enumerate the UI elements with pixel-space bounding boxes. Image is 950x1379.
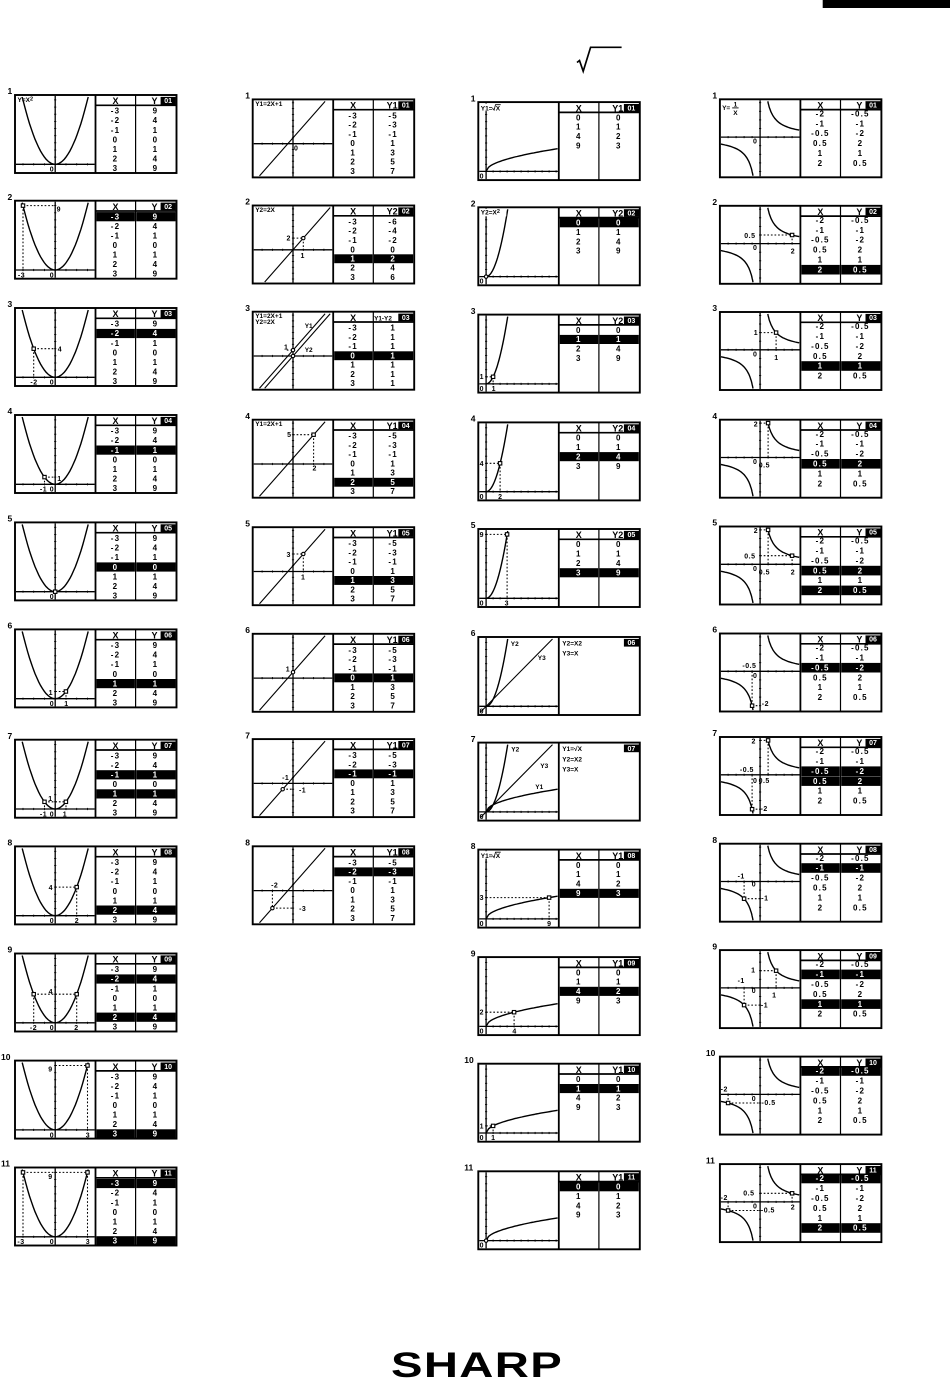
svg-text:3: 3 [113, 809, 119, 818]
svg-text:2: 2 [858, 1096, 864, 1105]
svg-text:1: 1 [63, 811, 67, 818]
svg-text:4: 4 [153, 1120, 159, 1129]
svg-text:04: 04 [628, 426, 636, 433]
svg-text:-3: -3 [388, 760, 398, 769]
svg-text:1: 1 [858, 1000, 864, 1009]
svg-text:0.5: 0.5 [853, 1010, 868, 1019]
svg-text:2: 2 [8, 192, 13, 202]
svg-text:X: X [496, 105, 501, 112]
svg-text:7: 7 [8, 731, 13, 741]
svg-text:Y: Y [151, 1062, 157, 1072]
svg-text:6: 6 [8, 621, 13, 631]
svg-text:0: 0 [753, 245, 757, 252]
svg-text:3: 3 [712, 303, 717, 313]
svg-text:9: 9 [153, 809, 159, 818]
svg-text:-1: -1 [111, 984, 121, 993]
svg-text:5: 5 [390, 585, 396, 594]
svg-text:-1: -1 [388, 450, 398, 459]
svg-text:-0.5: -0.5 [851, 109, 870, 118]
svg-text:0: 0 [480, 1029, 484, 1036]
svg-text:-2: -2 [816, 1174, 826, 1183]
svg-text:9: 9 [576, 997, 582, 1006]
svg-text:3: 3 [113, 1237, 119, 1246]
svg-text:-2: -2 [348, 227, 358, 236]
svg-text:01: 01 [402, 103, 410, 110]
svg-text:-2: -2 [721, 1086, 728, 1093]
svg-text:2: 2 [113, 906, 119, 915]
svg-text:9: 9 [57, 207, 61, 214]
svg-text:0: 0 [753, 778, 757, 785]
svg-text:2: 2 [818, 159, 824, 168]
svg-text:-2: -2 [816, 747, 826, 756]
svg-text:-3: -3 [111, 751, 121, 760]
svg-text:0: 0 [153, 994, 159, 1003]
svg-text:0.5: 0.5 [813, 777, 828, 786]
svg-text:4: 4 [616, 452, 622, 461]
svg-text:1: 1 [350, 576, 356, 585]
svg-text:X: X [350, 207, 356, 217]
svg-text:X: X [112, 631, 118, 641]
svg-text:2: 2 [818, 1116, 824, 1125]
svg-text:Y: Y [151, 741, 157, 751]
svg-text:0: 0 [576, 219, 582, 228]
svg-text:-0.5: -0.5 [811, 874, 830, 883]
svg-text:0: 0 [50, 167, 54, 174]
svg-text:2: 2 [858, 566, 864, 575]
svg-text:X: X [576, 1173, 582, 1183]
svg-text:7: 7 [390, 167, 396, 176]
svg-text:-3: -3 [348, 646, 358, 655]
svg-text:01: 01 [869, 103, 877, 110]
svg-text:Y2=X2: Y2=X2 [562, 640, 582, 647]
svg-text:2: 2 [350, 905, 356, 914]
svg-text:-2: -2 [816, 537, 826, 546]
svg-text:2: 2 [75, 918, 79, 925]
svg-text:4: 4 [576, 132, 582, 141]
svg-text:3: 3 [480, 895, 484, 902]
svg-text:0: 0 [153, 1101, 159, 1110]
svg-text:-1: -1 [816, 226, 826, 235]
svg-text:-1: -1 [299, 787, 306, 794]
svg-text:4: 4 [49, 885, 53, 892]
svg-text:-3: -3 [388, 441, 398, 450]
svg-text:X: X [350, 313, 356, 323]
svg-text:-1: -1 [816, 440, 826, 449]
svg-text:2: 2 [480, 1010, 484, 1017]
svg-text:Y2=X2: Y2=X2 [562, 756, 582, 763]
svg-text:Y1: Y1 [387, 101, 398, 111]
svg-text:-3: -3 [388, 655, 398, 664]
svg-text:-1: -1 [816, 654, 826, 663]
svg-text:4: 4 [153, 799, 159, 808]
svg-text:0: 0 [480, 494, 484, 501]
svg-text:-2: -2 [111, 651, 121, 660]
svg-text:1: 1 [390, 352, 396, 361]
svg-text:Y: Y [151, 416, 157, 426]
svg-text:3: 3 [390, 576, 396, 585]
svg-text:4: 4 [153, 761, 159, 770]
svg-text:-2: -2 [30, 1025, 37, 1032]
svg-text:1: 1 [153, 1198, 159, 1207]
svg-text:08: 08 [628, 853, 636, 860]
svg-text:0: 0 [576, 540, 582, 549]
svg-text:-1: -1 [856, 1077, 866, 1086]
svg-text:-3: -3 [348, 218, 358, 227]
svg-text:-2: -2 [761, 806, 768, 813]
svg-text:Y3=X: Y3=X [562, 767, 579, 774]
svg-text:Y1: Y1 [387, 848, 398, 858]
svg-text:-1: -1 [40, 487, 47, 494]
svg-text:Y: Y [151, 848, 157, 858]
svg-text:-5: -5 [388, 111, 398, 120]
svg-text:1: 1 [48, 796, 52, 803]
svg-text:03: 03 [402, 315, 410, 322]
svg-text:-5: -5 [388, 646, 398, 655]
svg-text:-2: -2 [30, 380, 37, 387]
svg-text:0: 0 [616, 1183, 622, 1192]
svg-text:1: 1 [64, 701, 68, 708]
svg-text:-2: -2 [816, 1067, 826, 1076]
svg-text:1: 1 [113, 1111, 119, 1120]
svg-text:-2: -2 [111, 761, 121, 770]
svg-text:X: X [112, 741, 118, 751]
svg-text:-0.5: -0.5 [811, 1087, 830, 1096]
svg-text:1: 1 [818, 1214, 824, 1223]
svg-text:2: 2 [616, 880, 622, 889]
svg-text:X: X [496, 853, 501, 860]
svg-text:0: 0 [616, 968, 622, 977]
svg-text:3: 3 [616, 889, 622, 898]
svg-text:X: X [733, 110, 738, 117]
svg-text:-1: -1 [348, 450, 358, 459]
svg-text:-1: -1 [111, 1198, 121, 1207]
svg-text:3: 3 [113, 698, 119, 707]
svg-text:0.5: 0.5 [813, 673, 828, 682]
svg-text:Y: Y [151, 524, 157, 534]
svg-text:0: 0 [113, 135, 119, 144]
svg-text:1: 1 [858, 469, 864, 478]
svg-text:4: 4 [153, 368, 159, 377]
svg-text:1: 1 [576, 123, 582, 132]
svg-text:9: 9 [153, 212, 159, 221]
svg-text:4: 4 [616, 559, 622, 568]
svg-text:1: 1 [153, 1003, 159, 1012]
svg-text:0: 0 [350, 352, 356, 361]
svg-text:1: 1 [858, 149, 864, 158]
svg-text:05: 05 [628, 532, 636, 539]
svg-text:1: 1 [245, 91, 250, 101]
svg-text:0: 0 [113, 241, 119, 250]
svg-text:2: 2 [616, 987, 622, 996]
svg-text:0: 0 [153, 135, 159, 144]
svg-text:4: 4 [153, 651, 159, 660]
svg-text:9: 9 [153, 484, 159, 493]
svg-text:1: 1 [153, 358, 159, 367]
svg-text:9: 9 [547, 921, 551, 928]
svg-text:7: 7 [712, 728, 717, 738]
svg-text:2: 2 [113, 1227, 119, 1236]
svg-text:Y1=: Y1= [481, 105, 493, 112]
svg-text:9: 9 [153, 915, 159, 924]
svg-text:0.5: 0.5 [813, 1096, 828, 1105]
svg-text:4: 4 [153, 1227, 159, 1236]
svg-text:-2: -2 [856, 874, 866, 883]
svg-text:3: 3 [113, 1130, 119, 1139]
svg-text:-1: -1 [761, 1003, 768, 1010]
svg-text:2: 2 [350, 158, 356, 167]
svg-text:04: 04 [869, 423, 877, 430]
svg-text:2: 2 [754, 421, 758, 428]
svg-text:4: 4 [390, 264, 396, 273]
svg-text:0.5: 0.5 [813, 566, 828, 575]
svg-text:3: 3 [350, 807, 356, 816]
svg-text:-1: -1 [348, 236, 358, 245]
svg-text:1: 1 [113, 572, 119, 581]
svg-text:4: 4 [576, 987, 582, 996]
svg-text:2: 2 [350, 370, 356, 379]
svg-text:0: 0 [616, 326, 622, 335]
svg-text:2: 2 [616, 1201, 622, 1210]
svg-text:Y: Y [151, 96, 157, 106]
svg-text:1: 1 [818, 787, 824, 796]
svg-text:-2: -2 [111, 868, 121, 877]
svg-text:5: 5 [390, 797, 396, 806]
svg-text:9: 9 [153, 377, 159, 386]
svg-text:0.5: 0.5 [853, 903, 868, 912]
svg-text:1: 1 [390, 370, 396, 379]
svg-text:1: 1 [858, 362, 864, 371]
svg-text:Y1=√X: Y1=√X [562, 745, 582, 753]
svg-text:1: 1 [153, 572, 159, 581]
svg-text:-2: -2 [721, 1195, 728, 1202]
svg-text:2: 2 [113, 475, 119, 484]
svg-text:0: 0 [350, 245, 356, 254]
svg-text:-1: -1 [761, 895, 768, 902]
svg-text:3: 3 [113, 591, 119, 600]
svg-text:-1: -1 [816, 970, 826, 979]
svg-text:-3: -3 [348, 858, 358, 867]
svg-text:-1: -1 [388, 558, 398, 567]
svg-text:-3: -3 [388, 548, 398, 557]
svg-text:0: 0 [153, 348, 159, 357]
svg-text:0: 0 [616, 540, 622, 549]
svg-text:4: 4 [153, 544, 159, 553]
svg-text:9: 9 [616, 462, 622, 471]
svg-text:1: 1 [390, 324, 396, 333]
svg-text:3: 3 [350, 595, 356, 604]
svg-text:-2: -2 [348, 441, 358, 450]
svg-text:0.5: 0.5 [813, 352, 828, 361]
svg-text:2: 2 [471, 199, 476, 209]
svg-text:0: 0 [350, 779, 356, 788]
svg-text:0: 0 [153, 455, 159, 464]
svg-text:0.5: 0.5 [744, 233, 755, 240]
svg-text:-2: -2 [348, 548, 358, 557]
svg-text:-5: -5 [388, 751, 398, 760]
svg-text:0: 0 [50, 1132, 54, 1139]
svg-text:1: 1 [57, 476, 61, 483]
svg-text:X: X [112, 309, 118, 319]
svg-text:1: 1 [390, 567, 396, 576]
svg-text:05: 05 [869, 530, 877, 537]
svg-text:-1: -1 [40, 811, 47, 818]
svg-text:2: 2 [858, 884, 864, 893]
svg-text:9: 9 [153, 641, 159, 650]
svg-text:9: 9 [153, 1023, 159, 1032]
svg-text:4: 4 [153, 436, 159, 445]
svg-text:X: X [350, 848, 356, 858]
svg-text:-3: -3 [348, 324, 358, 333]
svg-text:5: 5 [390, 905, 396, 914]
svg-text:1: 1 [153, 679, 159, 688]
svg-text:3: 3 [390, 469, 396, 478]
svg-text:-5: -5 [388, 432, 398, 441]
svg-text:Y1: Y1 [612, 958, 623, 968]
svg-text:2: 2 [312, 466, 316, 473]
svg-text:0: 0 [50, 811, 54, 818]
svg-text:03: 03 [628, 318, 636, 325]
svg-text:-2: -2 [348, 121, 358, 130]
svg-text:7: 7 [390, 807, 396, 816]
svg-text:-3: -3 [111, 107, 121, 116]
svg-text:0: 0 [50, 1025, 54, 1032]
svg-text:Y1: Y1 [387, 740, 398, 750]
svg-text:-0.5: -0.5 [851, 537, 870, 546]
svg-text:-1: -1 [388, 770, 398, 779]
svg-text:2: 2 [712, 197, 717, 207]
svg-text:X: X [576, 851, 582, 861]
svg-text:-1: -1 [816, 864, 826, 873]
svg-text:1: 1 [350, 148, 356, 157]
svg-text:-0.5: -0.5 [851, 747, 870, 756]
svg-text:06: 06 [164, 633, 172, 640]
svg-text:3: 3 [390, 683, 396, 692]
svg-text:4: 4 [245, 411, 250, 421]
svg-text:Y3=X: Y3=X [562, 651, 579, 658]
svg-text:9: 9 [616, 568, 622, 577]
svg-text:1: 1 [818, 576, 824, 585]
svg-text:0.5: 0.5 [813, 1204, 828, 1213]
svg-text:X: X [576, 1065, 582, 1075]
svg-text:2: 2 [818, 372, 824, 381]
svg-text:X: X [112, 848, 118, 858]
svg-text:-1: -1 [111, 232, 121, 241]
svg-text:-3: -3 [111, 212, 121, 221]
svg-text:2: 2 [74, 1025, 78, 1032]
svg-text:0: 0 [113, 348, 119, 357]
svg-text:1: 1 [153, 984, 159, 993]
svg-text:10: 10 [1, 1052, 11, 1062]
svg-text:-1: -1 [388, 877, 398, 886]
svg-text:-0.5: -0.5 [761, 1207, 775, 1214]
svg-text:-0.5: -0.5 [851, 854, 870, 863]
svg-text:Y1: Y1 [612, 1173, 623, 1183]
svg-text:3: 3 [505, 600, 509, 607]
svg-text:0: 0 [113, 887, 119, 896]
svg-text:X: X [576, 958, 582, 968]
svg-text:-2: -2 [816, 854, 826, 863]
svg-text:0: 0 [576, 326, 582, 335]
svg-text:0: 0 [113, 994, 119, 1003]
svg-text:-0.5: -0.5 [811, 767, 830, 776]
svg-text:06: 06 [402, 637, 410, 644]
svg-text:-1: -1 [856, 119, 866, 128]
svg-text:1: 1 [818, 149, 824, 158]
svg-text:0.5: 0.5 [853, 1116, 868, 1125]
svg-text:0.5: 0.5 [743, 1191, 754, 1198]
svg-text:-1: -1 [816, 1077, 826, 1086]
svg-text:2: 2 [818, 1224, 824, 1233]
svg-text:4: 4 [153, 475, 159, 484]
svg-text:0: 0 [752, 988, 756, 995]
svg-text:4: 4 [153, 116, 159, 125]
svg-text:4: 4 [153, 329, 159, 338]
svg-text:05: 05 [402, 530, 410, 537]
svg-text:-5: -5 [388, 539, 398, 548]
svg-text:-0.5: -0.5 [811, 1194, 830, 1203]
svg-text:2: 2 [818, 265, 824, 274]
svg-text:9: 9 [153, 965, 159, 974]
svg-text:1: 1 [350, 788, 356, 797]
svg-text:-3: -3 [111, 534, 121, 543]
svg-text:Y: Y [151, 1169, 157, 1179]
svg-text:2: 2 [576, 237, 582, 246]
svg-text:Y1: Y1 [305, 323, 313, 330]
svg-text:3: 3 [113, 484, 119, 493]
svg-text:-3: -3 [111, 1179, 121, 1188]
svg-text:1: 1 [818, 362, 824, 371]
svg-text:3: 3 [113, 377, 119, 386]
svg-text:9: 9 [616, 247, 622, 256]
svg-text:3: 3 [350, 487, 356, 496]
svg-text:1: 1 [576, 550, 582, 559]
svg-text:9: 9 [480, 532, 484, 539]
svg-text:1: 1 [818, 893, 824, 902]
svg-text:Y1: Y1 [387, 635, 398, 645]
svg-text:1: 1 [858, 683, 864, 692]
svg-text:2: 2 [113, 1120, 119, 1129]
svg-text:1: 1 [471, 93, 476, 103]
svg-text:Y1=2X+1: Y1=2X+1 [255, 101, 282, 108]
svg-text:2: 2 [751, 739, 755, 746]
svg-text:0.5: 0.5 [813, 460, 828, 469]
svg-text:-3: -3 [111, 320, 121, 329]
svg-text:06: 06 [628, 640, 636, 647]
svg-text:3: 3 [576, 354, 582, 363]
svg-text:4: 4 [153, 975, 159, 984]
svg-text:0: 0 [753, 673, 757, 680]
svg-text:2: 2 [818, 797, 824, 806]
svg-text:Y1: Y1 [387, 528, 398, 538]
svg-text:-1: -1 [388, 664, 398, 673]
svg-text:-1: -1 [348, 342, 358, 351]
svg-text:1: 1 [616, 1084, 622, 1093]
svg-text:-2: -2 [348, 760, 358, 769]
svg-text:4: 4 [153, 1189, 159, 1198]
svg-text:Y: Y [151, 955, 157, 965]
svg-text:1: 1 [754, 330, 758, 337]
svg-text:1: 1 [491, 1135, 495, 1142]
svg-text:2: 2 [350, 797, 356, 806]
svg-text:Y1-Y2: Y1-Y2 [374, 315, 392, 322]
svg-text:X: X [112, 96, 118, 106]
svg-text:2: 2 [350, 264, 356, 273]
svg-text:9: 9 [153, 270, 159, 279]
svg-text:0.5: 0.5 [853, 265, 868, 274]
svg-text:1: 1 [616, 870, 622, 879]
svg-text:2: 2 [113, 155, 119, 164]
svg-text:0: 0 [616, 113, 622, 122]
